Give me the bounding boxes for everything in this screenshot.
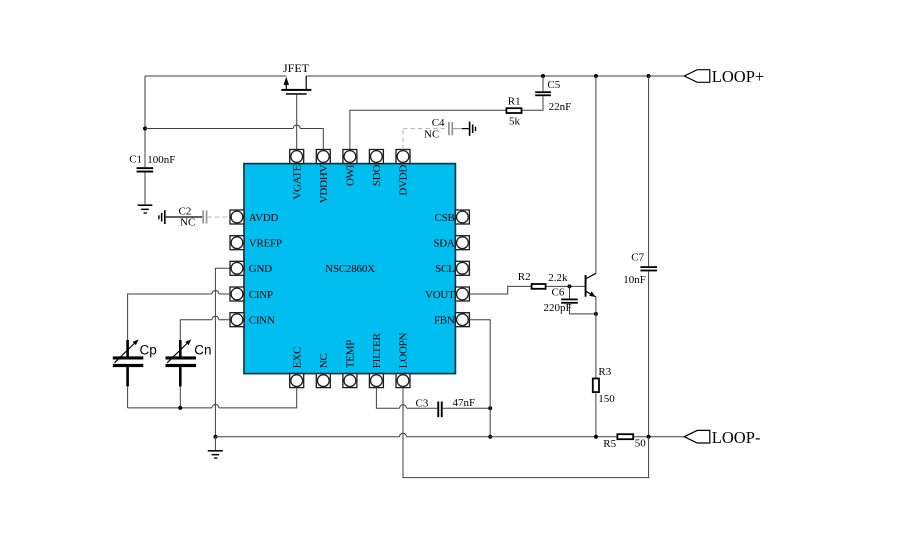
svg-text:R3: R3 [598, 366, 611, 378]
svg-text:C4: C4 [432, 117, 445, 129]
svg-text:50: 50 [635, 438, 647, 450]
svg-text:SDO: SDO [371, 165, 383, 187]
svg-text:SCL: SCL [435, 263, 455, 275]
svg-text:R5: R5 [603, 438, 616, 450]
svg-text:VREFP: VREFP [249, 238, 282, 250]
svg-text:NC: NC [180, 217, 195, 229]
svg-text:SDA: SDA [433, 238, 455, 250]
svg-text:FILTER: FILTER [371, 333, 383, 369]
svg-text:NSC2860X: NSC2860X [325, 263, 375, 275]
svg-text:NC: NC [424, 128, 439, 140]
svg-text:C2: C2 [179, 205, 192, 217]
svg-text:CINP: CINP [249, 289, 273, 301]
svg-text:Cp: Cp [140, 343, 157, 358]
svg-text:AVDD: AVDD [249, 212, 279, 224]
svg-text:GND: GND [249, 263, 272, 275]
svg-text:JFET: JFET [283, 61, 310, 75]
svg-text:CINN: CINN [249, 315, 275, 327]
svg-text:LOOP-: LOOP- [712, 428, 761, 447]
svg-text:R1: R1 [508, 96, 521, 108]
svg-text:TEMP: TEMP [345, 340, 357, 368]
svg-text:220pF: 220pF [544, 302, 572, 314]
svg-text:C3: C3 [416, 397, 429, 409]
svg-text:C5: C5 [547, 79, 560, 91]
svg-text:R2: R2 [518, 271, 531, 283]
svg-text:OWI: OWI [345, 164, 357, 186]
svg-text:C7: C7 [631, 252, 644, 264]
svg-text:Cn: Cn [194, 343, 211, 358]
svg-text:CSB: CSB [435, 212, 455, 224]
svg-text:2.2k: 2.2k [548, 272, 568, 284]
svg-text:FBN: FBN [434, 315, 455, 327]
svg-text:LOOPN: LOOPN [398, 332, 410, 368]
svg-text:C1: C1 [129, 153, 142, 165]
svg-text:EXC: EXC [291, 347, 303, 368]
svg-text:VOUT: VOUT [425, 289, 455, 301]
svg-text:100nF: 100nF [147, 154, 175, 166]
svg-text:22nF: 22nF [549, 101, 572, 113]
svg-text:VDDHV: VDDHV [318, 165, 330, 204]
svg-text:LOOP+: LOOP+ [712, 67, 764, 86]
svg-text:NC: NC [318, 353, 330, 368]
svg-text:C6: C6 [552, 286, 565, 298]
svg-text:VGATE: VGATE [291, 164, 303, 199]
svg-text:5k: 5k [509, 115, 521, 127]
svg-text:150: 150 [598, 393, 615, 405]
svg-text:DVDD: DVDD [398, 164, 410, 195]
svg-text:47nF: 47nF [453, 397, 476, 409]
svg-text:10nF: 10nF [623, 274, 646, 286]
